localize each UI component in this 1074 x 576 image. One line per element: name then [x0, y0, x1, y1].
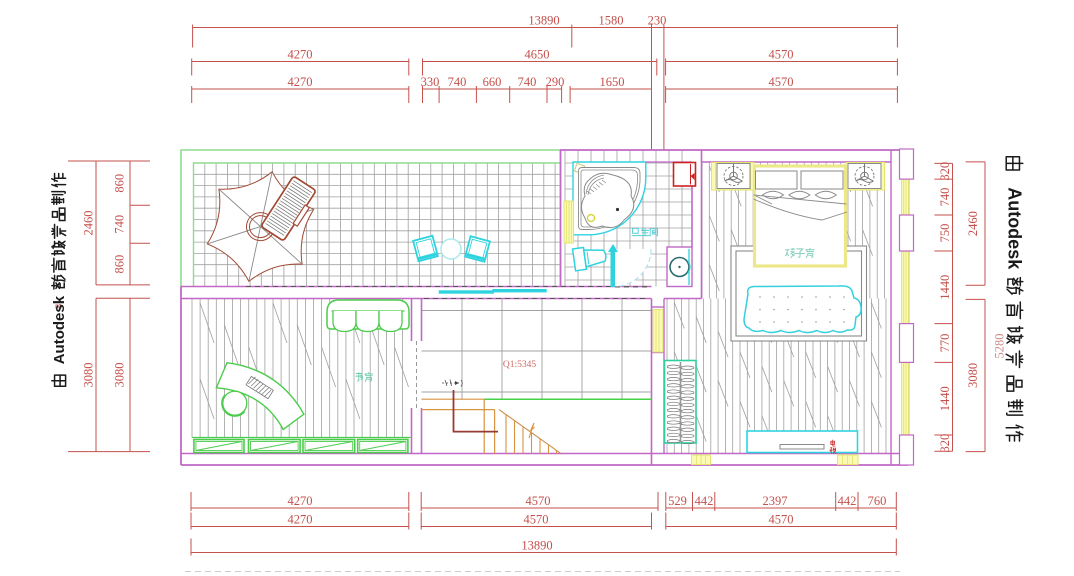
- svg-text:4270: 4270: [288, 75, 313, 89]
- svg-text:Q1:5345: Q1:5345: [503, 360, 537, 370]
- svg-text:4570: 4570: [769, 75, 794, 89]
- svg-text:3080: 3080: [113, 363, 127, 388]
- svg-text:442: 442: [695, 494, 714, 508]
- svg-text:320: 320: [938, 434, 952, 453]
- svg-text:860: 860: [113, 255, 127, 274]
- svg-text:4570: 4570: [524, 513, 549, 527]
- svg-text:5280: 5280: [993, 334, 1007, 359]
- svg-text:660: 660: [483, 75, 502, 89]
- svg-text:4570: 4570: [769, 48, 794, 62]
- svg-text:2460: 2460: [966, 211, 980, 236]
- svg-text:740: 740: [448, 75, 467, 89]
- svg-text:442: 442: [838, 494, 857, 508]
- svg-text:529: 529: [668, 494, 687, 508]
- svg-text:Autodesk: Autodesk: [1004, 187, 1024, 270]
- svg-text:4570: 4570: [526, 494, 551, 508]
- svg-text:740: 740: [113, 215, 127, 234]
- svg-text:860: 860: [113, 174, 127, 193]
- svg-text:2460: 2460: [81, 211, 95, 236]
- svg-text:760: 760: [868, 494, 887, 508]
- svg-text:3080: 3080: [81, 363, 95, 388]
- svg-text:1580: 1580: [599, 14, 624, 28]
- svg-text:4570: 4570: [769, 513, 794, 527]
- svg-text:Autodesk: Autodesk: [51, 295, 68, 364]
- svg-text:750: 750: [938, 224, 952, 243]
- svg-text:330: 330: [421, 75, 440, 89]
- svg-text:3080: 3080: [966, 363, 980, 388]
- svg-text:320: 320: [938, 162, 952, 181]
- svg-text:2397: 2397: [763, 494, 788, 508]
- svg-text:13890: 13890: [521, 539, 552, 553]
- svg-text:4270: 4270: [288, 48, 313, 62]
- svg-text:740: 740: [938, 188, 952, 207]
- svg-text:230: 230: [648, 14, 667, 28]
- svg-text:13890: 13890: [528, 14, 559, 28]
- svg-text:1440: 1440: [938, 275, 952, 300]
- svg-text:4270: 4270: [288, 513, 313, 527]
- svg-text:770: 770: [938, 334, 952, 353]
- svg-text:4650: 4650: [525, 48, 550, 62]
- svg-text:4270: 4270: [288, 494, 313, 508]
- svg-text:1440: 1440: [938, 386, 952, 411]
- svg-text:1650: 1650: [600, 75, 625, 89]
- svg-text:290: 290: [546, 75, 565, 89]
- svg-text:740: 740: [518, 75, 537, 89]
